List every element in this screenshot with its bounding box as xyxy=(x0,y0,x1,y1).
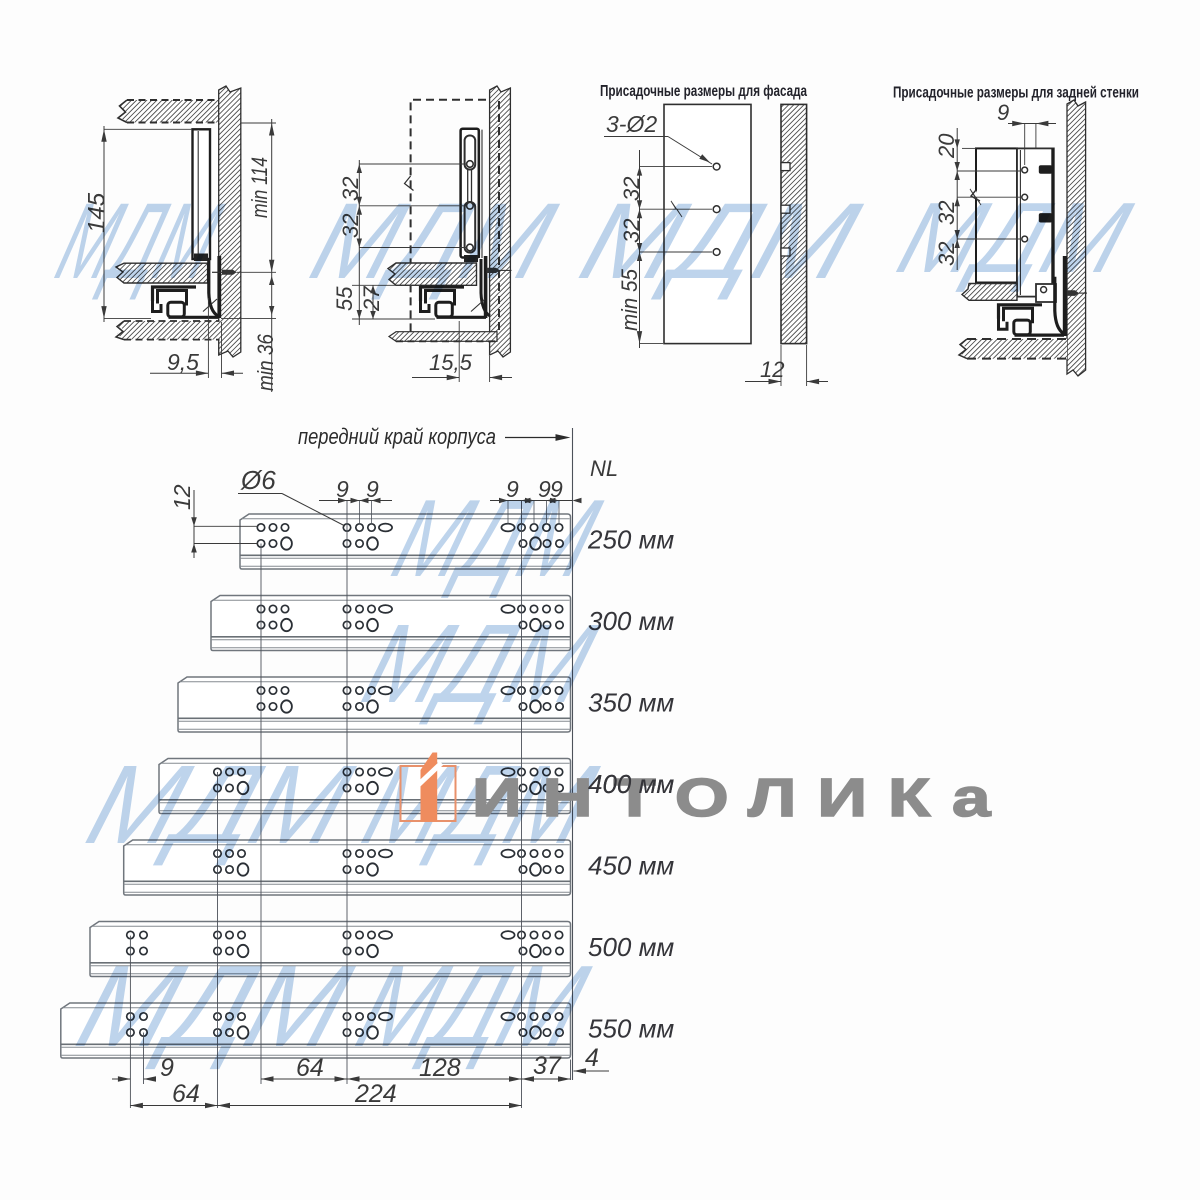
svg-text:min 36: min 36 xyxy=(253,333,278,391)
svg-text:12: 12 xyxy=(760,357,784,382)
svg-text:224: 224 xyxy=(354,1080,397,1108)
svg-text:МДМ: МДМ xyxy=(567,182,872,302)
svg-text:МДМ: МДМ xyxy=(344,942,602,1072)
svg-text:9: 9 xyxy=(997,100,1009,125)
svg-text:64: 64 xyxy=(172,1080,200,1108)
svg-text:min 114: min 114 xyxy=(247,157,272,218)
svg-text:9,5: 9,5 xyxy=(167,349,199,375)
svg-text:12: 12 xyxy=(169,484,195,510)
svg-text:20: 20 xyxy=(934,133,959,159)
svg-text:МДМ: МДМ xyxy=(886,181,1143,293)
svg-text:МДМ: МДМ xyxy=(298,182,568,302)
svg-text:450 мм: 450 мм xyxy=(588,851,674,881)
svg-text:МДМ: МДМ xyxy=(350,602,609,727)
svg-text:9: 9 xyxy=(366,476,379,502)
svg-text:передний край корпуса: передний край корпуса xyxy=(298,424,496,449)
svg-text:4: 4 xyxy=(585,1044,599,1072)
svg-text:МДМ: МДМ xyxy=(380,477,613,600)
svg-text:3-Ø2: 3-Ø2 xyxy=(606,111,657,137)
svg-text:Присадочные размеры для задней: Присадочные размеры для задней стенки xyxy=(893,85,1139,102)
svg-text:МДМ: МДМ xyxy=(64,942,365,1072)
svg-text:МДМ: МДМ xyxy=(74,743,365,868)
svg-text:550 мм: 550 мм xyxy=(588,1014,674,1044)
svg-text:500 мм: 500 мм xyxy=(588,932,674,962)
svg-text:250 мм: 250 мм xyxy=(587,525,674,555)
svg-text:Присадочные размеры для фасада: Присадочные размеры для фасада xyxy=(600,83,807,100)
svg-text:400 мм: 400 мм xyxy=(588,769,674,799)
svg-text:Ø6: Ø6 xyxy=(240,465,276,495)
svg-text:9: 9 xyxy=(336,476,349,502)
svg-text:15,5: 15,5 xyxy=(429,350,473,375)
svg-text:350 мм: 350 мм xyxy=(588,688,674,718)
